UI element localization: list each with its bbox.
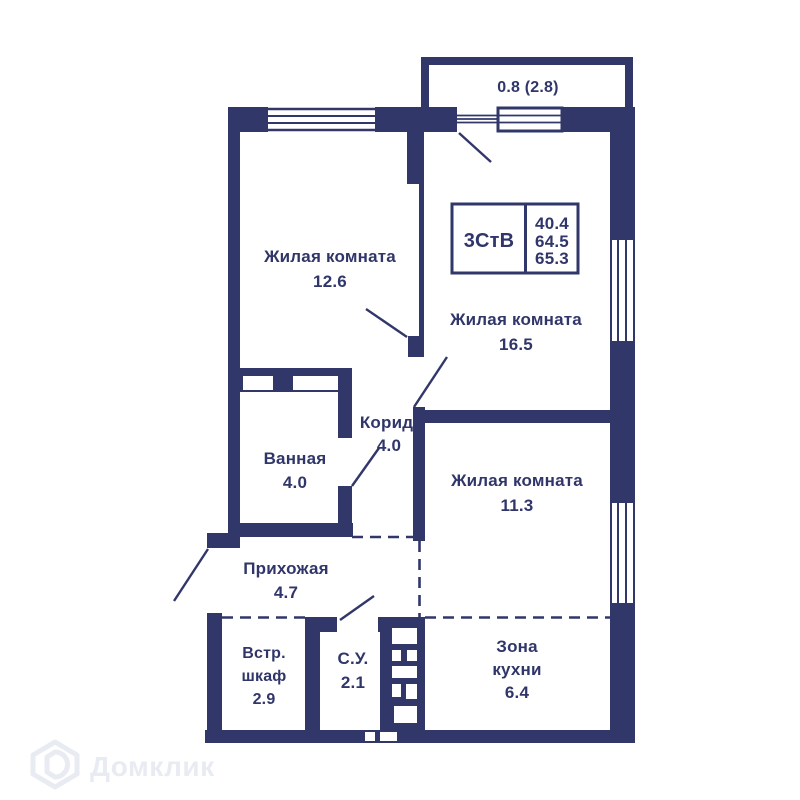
balcony-door-block [498, 108, 562, 131]
wall-bathroom-right-bottom [338, 486, 352, 523]
door-living1 [366, 309, 407, 337]
living3-name: Жилая комната [450, 471, 583, 490]
shaft-duct-5 [394, 706, 417, 723]
living1-name: Жилая комната [263, 247, 396, 266]
shaft-duct-4a [392, 684, 401, 697]
wall-bathroom-bottom [228, 523, 353, 537]
wall-left [228, 107, 240, 537]
door-wc [340, 596, 374, 620]
domclick-logo-inner [47, 752, 68, 777]
wall-bottom [205, 730, 635, 743]
wall-living1-living2-upper [407, 132, 424, 184]
watermark: Домклик [33, 742, 215, 787]
layout-type-label: 3СтВ [464, 230, 515, 252]
wall-right-b [610, 343, 635, 501]
wall-top-b [375, 107, 457, 132]
kitchen-area: 6.4 [505, 683, 530, 702]
bathroom-area: 4.0 [283, 473, 307, 492]
living3-area: 11.3 [501, 496, 534, 515]
wall-balcony-top [421, 57, 633, 65]
window-living3 [610, 501, 635, 605]
window-living2 [610, 238, 635, 343]
wc-area: 2.1 [341, 673, 365, 692]
domclick-logo-icon [33, 742, 77, 787]
bottom-wall-notch-2 [380, 732, 397, 741]
door-balcony [459, 133, 491, 162]
wc-name: С.У. [338, 649, 369, 668]
living2-area: 16.5 [499, 335, 533, 354]
area-value-1: 40.4 [535, 214, 569, 233]
shaft-duct-2a [392, 650, 401, 661]
living2-name: Жилая комната [449, 310, 582, 329]
wall-closet-left [207, 613, 222, 738]
closet-area: 2.9 [253, 691, 276, 708]
bathroom-name: Ванная [264, 449, 327, 468]
wall-balcony-left [421, 57, 429, 110]
shaft-duct-1 [392, 628, 417, 644]
wall-bathroom-right-top [338, 392, 352, 438]
living1-area: 12.6 [313, 272, 347, 291]
bathroom-niche-2 [293, 376, 338, 390]
window-balcony-strip [457, 107, 498, 132]
wall-living1-living2-thin [419, 184, 424, 337]
wall-right-c [610, 605, 635, 743]
door-living2-corridor [414, 357, 447, 407]
area-value-3: 65.3 [535, 249, 569, 268]
shaft-duct-4b [406, 684, 417, 699]
window-living1 [268, 107, 375, 132]
corridor-area: 4.0 [377, 436, 401, 455]
wall-balcony-right [625, 57, 633, 110]
hallway-name: Прихожая [243, 559, 328, 578]
door-entry [174, 549, 208, 601]
wall-right-a [610, 107, 635, 238]
bathroom-niche-1 [243, 376, 273, 390]
wall-living1-door-jamb [408, 336, 424, 357]
wall-living2-living3 [425, 410, 610, 423]
bottom-wall-notch-1 [365, 732, 375, 741]
wall-wc-top-left-jamb [305, 617, 337, 632]
closet-name-line1: Встр. [242, 645, 286, 662]
floorplan-svg: Домклик [0, 0, 800, 800]
wall-closet-wc [305, 617, 320, 730]
floorplan-image: Домклик [0, 0, 800, 800]
hallway-area: 4.7 [274, 583, 298, 602]
corridor-name: Корид. [360, 413, 418, 432]
kitchen-name-line2: кухни [492, 660, 541, 679]
shaft-duct-2b [407, 650, 417, 661]
closet-name-line2: шкаф [241, 668, 286, 685]
info-table: 3СтВ 40.4 64.5 65.3 [452, 204, 578, 273]
balcony-label: 0.8 (2.8) [497, 79, 558, 96]
watermark-text: Домклик [90, 751, 215, 782]
shaft-duct-3 [392, 666, 417, 678]
door-bathroom [352, 448, 379, 486]
kitchen-name-line1: Зона [496, 637, 538, 656]
